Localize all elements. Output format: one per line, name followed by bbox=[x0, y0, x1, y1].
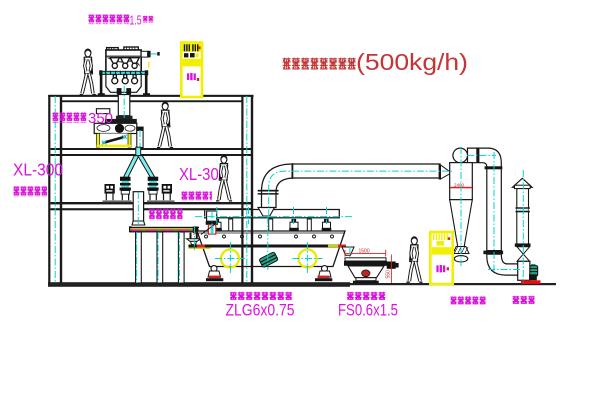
svg-text:(500kg/h): (500kg/h) bbox=[356, 49, 468, 75]
svg-text:FS0.6x1.5: FS0.6x1.5 bbox=[338, 301, 398, 320]
svg-text:350: 350 bbox=[88, 110, 113, 127]
svg-text:ZLG6x0.75: ZLG6x0.75 bbox=[226, 301, 295, 320]
svg-text:XL-300: XL-300 bbox=[13, 160, 63, 180]
svg-text:2400: 2400 bbox=[454, 182, 465, 187]
svg-text:1500: 1500 bbox=[359, 249, 370, 255]
svg-text:550: 550 bbox=[386, 270, 392, 279]
svg-text:1.5: 1.5 bbox=[130, 13, 142, 28]
